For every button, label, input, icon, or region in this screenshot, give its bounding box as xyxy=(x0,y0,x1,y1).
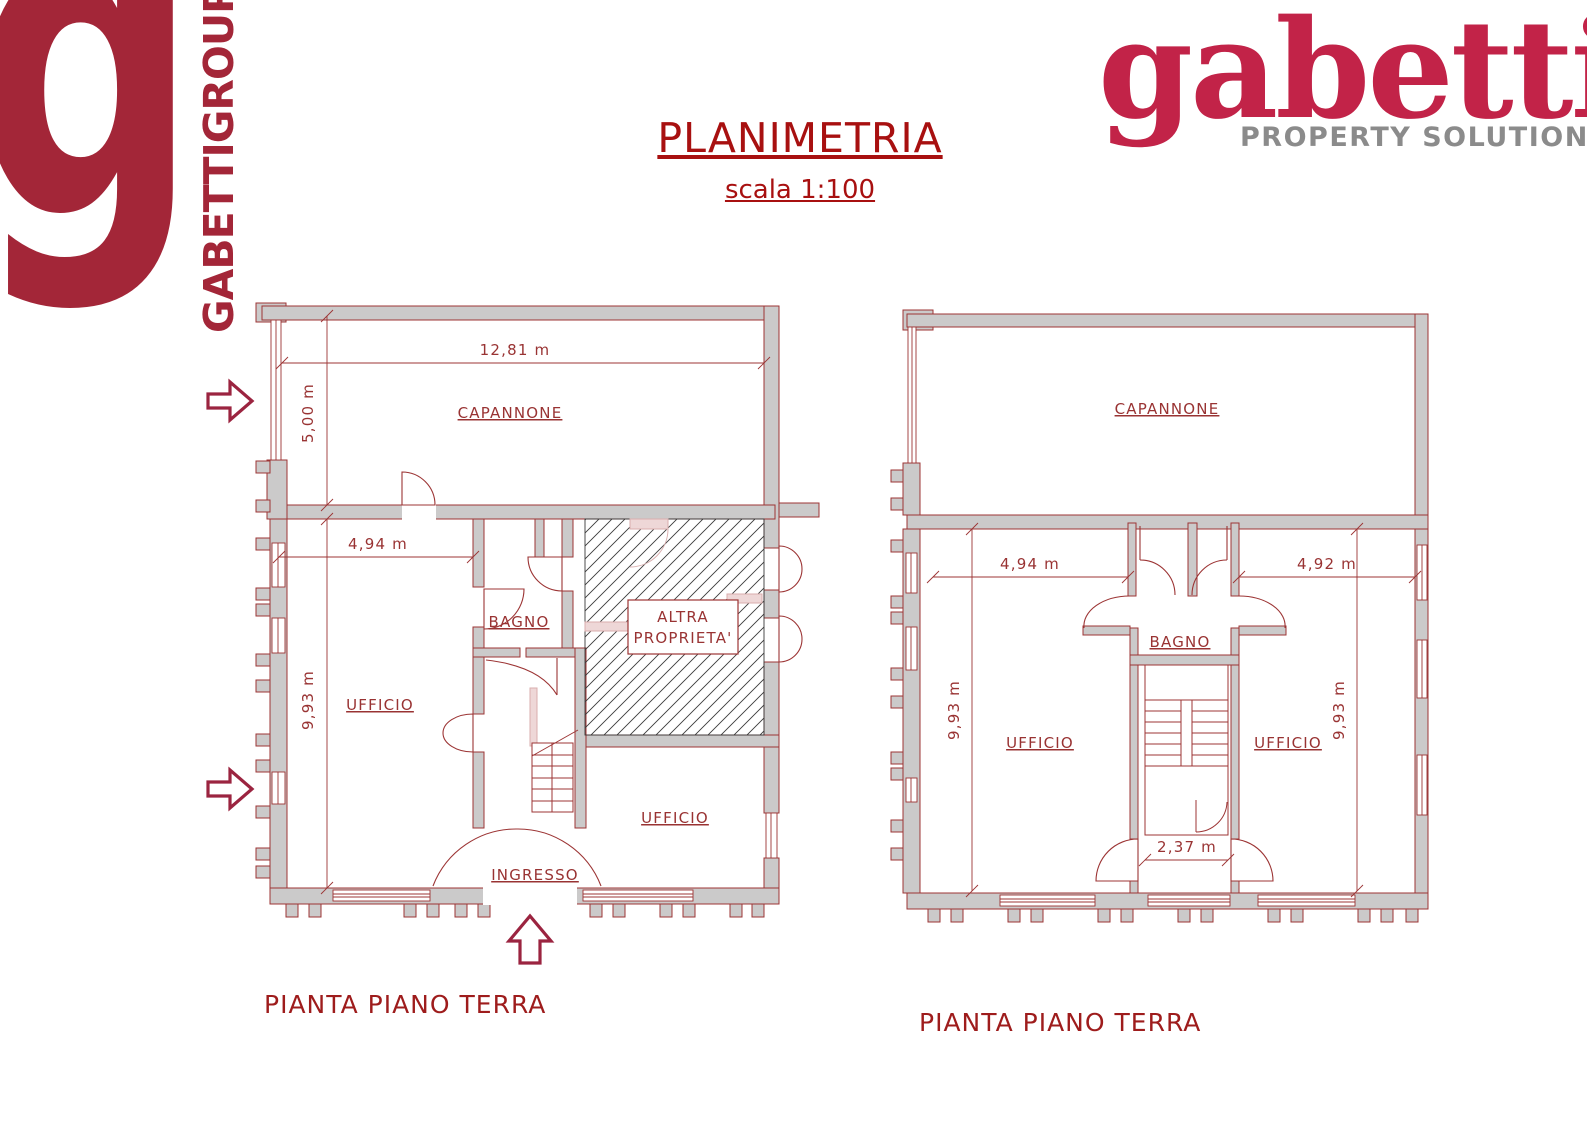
room-label-ufficio-secondary: UFFICIO xyxy=(641,809,709,827)
right-plan-stairs xyxy=(1145,665,1228,835)
room-label-ufficio-main: UFFICIO xyxy=(346,696,414,714)
left-plan-texts: CAPANNONE BAGNO UFFICIO UFFICIO INGRESSO… xyxy=(299,341,733,884)
caption-plan-right: PIANTA PIANO TERRA xyxy=(919,1008,1201,1037)
room-label-capannone-right: CAPANNONE xyxy=(1115,400,1220,418)
floor-plans-drawing: CAPANNONE BAGNO UFFICIO UFFICIO INGRESSO… xyxy=(0,0,1587,1122)
dim-ufficio-left-height: 9,93 m xyxy=(945,680,963,740)
dim-ufficio-width: 4,94 m xyxy=(348,535,408,553)
room-label-bagno-left: BAGNO xyxy=(489,613,550,631)
dim-ufficio-left-width: 4,94 m xyxy=(1000,555,1060,573)
entrance-arrow-left-top-icon xyxy=(208,382,252,420)
dim-ufficio-right-height: 9,93 m xyxy=(1330,680,1348,740)
other-property-label-line1: ALTRA xyxy=(657,608,709,626)
planimetria-page: g GABETTIGROUP PLANIMETRIA scala 1:100 g… xyxy=(0,0,1587,1122)
room-label-ingresso: INGRESSO xyxy=(491,866,579,884)
floor-plan-right: CAPANNONE BAGNO UFFICIO UFFICIO 4,94 m 4… xyxy=(891,310,1428,922)
dim-capannone-height: 5,00 m xyxy=(299,383,317,443)
entrance-arrow-bottom-icon xyxy=(509,916,551,963)
room-label-ufficio-right: UFFICIO xyxy=(1254,734,1322,752)
room-label-capannone-left: CAPANNONE xyxy=(458,404,563,422)
dim-ufficio-height: 9,93 m xyxy=(299,670,317,730)
dim-ufficio-right-width: 4,92 m xyxy=(1297,555,1357,573)
caption-plan-left: PIANTA PIANO TERRA xyxy=(264,990,546,1019)
other-property-label-line2: PROPRIETA' xyxy=(633,629,732,647)
left-plan-stairs xyxy=(530,688,578,812)
entrance-arrow-left-bottom-icon xyxy=(208,770,252,808)
room-label-bagno-right: BAGNO xyxy=(1150,633,1211,651)
room-label-ufficio-left: UFFICIO xyxy=(1006,734,1074,752)
floor-plan-left: CAPANNONE BAGNO UFFICIO UFFICIO INGRESSO… xyxy=(256,303,819,917)
dim-capannone-width: 12,81 m xyxy=(480,341,551,359)
dim-stair-width: 2,37 m xyxy=(1157,838,1217,856)
